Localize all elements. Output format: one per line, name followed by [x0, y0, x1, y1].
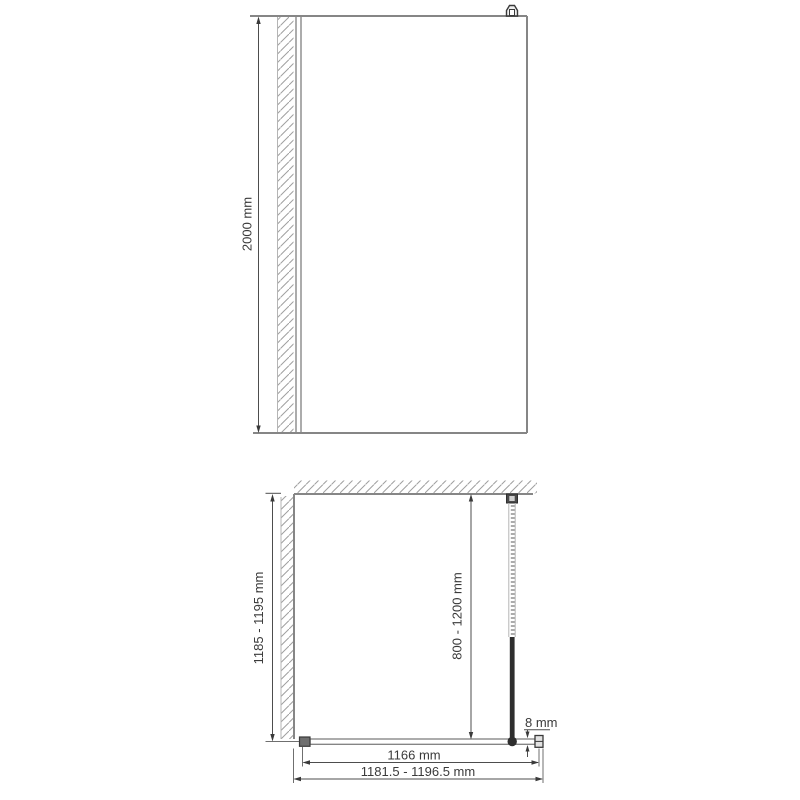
- support-bar: [507, 494, 518, 746]
- back-wall-hatch-plan: [294, 481, 537, 495]
- wall-profile-plan: [300, 737, 311, 746]
- support-bar-bracket-icon: [507, 6, 518, 17]
- side-wall-hatch-plan: [281, 494, 294, 739]
- glass-thickness-label: 8 mm: [525, 715, 558, 730]
- support-bar-rod: [510, 637, 515, 740]
- glass-clamp: [508, 737, 517, 746]
- dimension-height: 2000 mm: [240, 17, 261, 434]
- wall-profile-front: [296, 16, 301, 433]
- shower-screen-drawing: 2000 mm: [0, 0, 800, 800]
- depth-dim-label: 1185 - 1195 mm: [251, 572, 266, 665]
- front-elevation-view: 2000 mm: [240, 6, 528, 434]
- glass-end-cap: [535, 736, 543, 748]
- glass-panel-plan: [300, 736, 544, 748]
- glass-width-label: 1166 mm: [387, 748, 440, 763]
- support-bar-wall-bracket: [507, 494, 518, 503]
- technical-drawing-page: 2000 mm: [0, 0, 800, 800]
- support-bar-tube: [509, 503, 515, 637]
- height-dim-label: 2000 mm: [240, 197, 255, 251]
- support-bar-dim-label: 800 - 1200 mm: [450, 572, 465, 659]
- overall-width-label: 1181.5 - 1196.5 mm: [361, 764, 475, 779]
- dimension-support-bar: 800 - 1200 mm: [450, 494, 474, 740]
- plan-view: 1185 - 1195 mm 800 - 1200 mm 8 mm 1166 m…: [251, 481, 558, 784]
- wall-section-hatch-front: [278, 16, 294, 433]
